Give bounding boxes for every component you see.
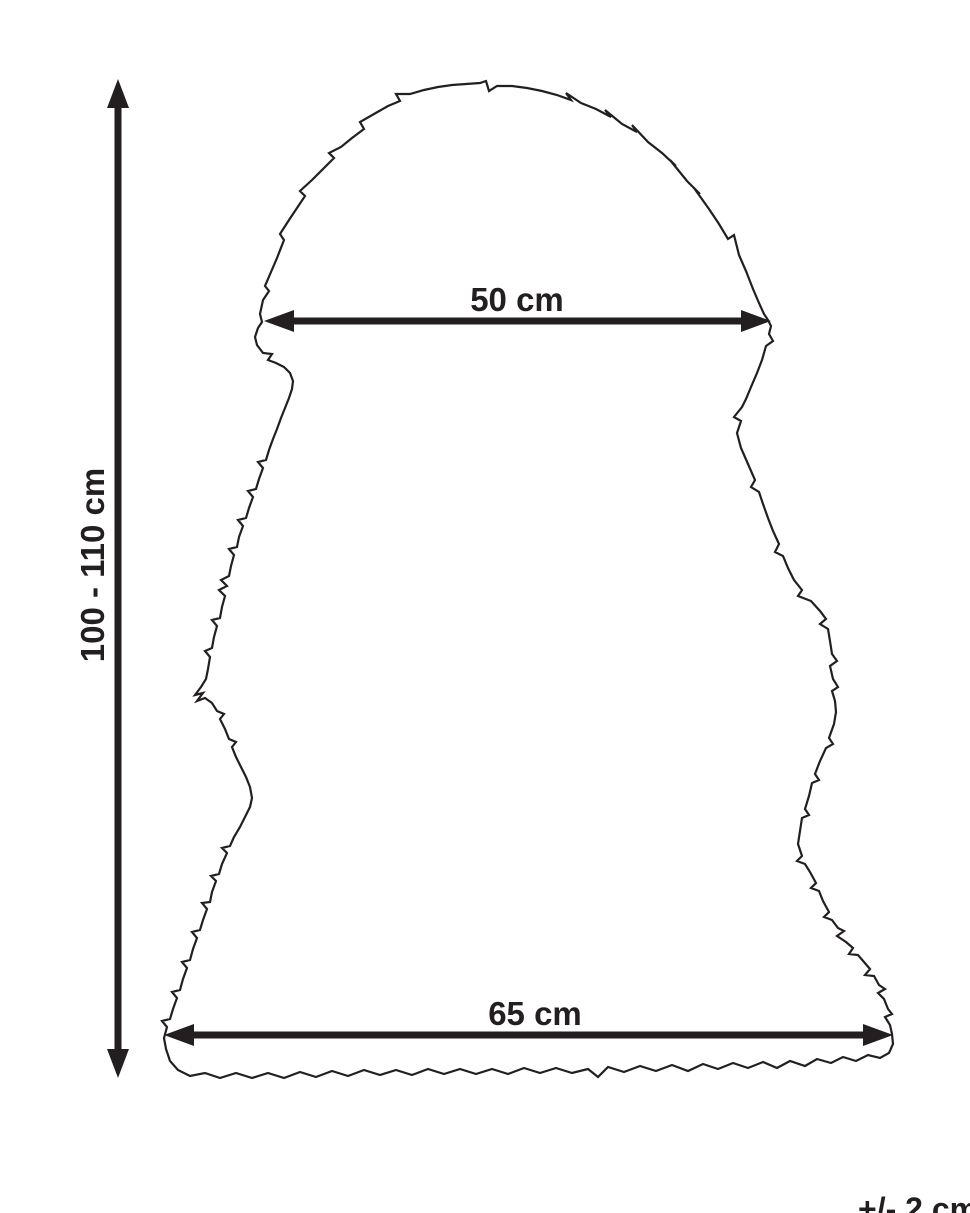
height-arrow-head-down-icon (107, 1049, 129, 1078)
bottom-width-label: 65 cm (410, 995, 660, 1033)
height-label: 100 - 110 cm (73, 435, 113, 695)
height-arrow-head-up-icon (107, 79, 129, 108)
top-width-label: 50 cm (392, 281, 642, 319)
height-arrow-shaft (115, 104, 122, 1051)
dimension-diagram: 50 cm 65 cm 100 - 110 cm +/- 2 cm (0, 0, 970, 1213)
rug-outline (162, 81, 893, 1078)
tolerance-label: +/- 2 cm (858, 1191, 970, 1213)
